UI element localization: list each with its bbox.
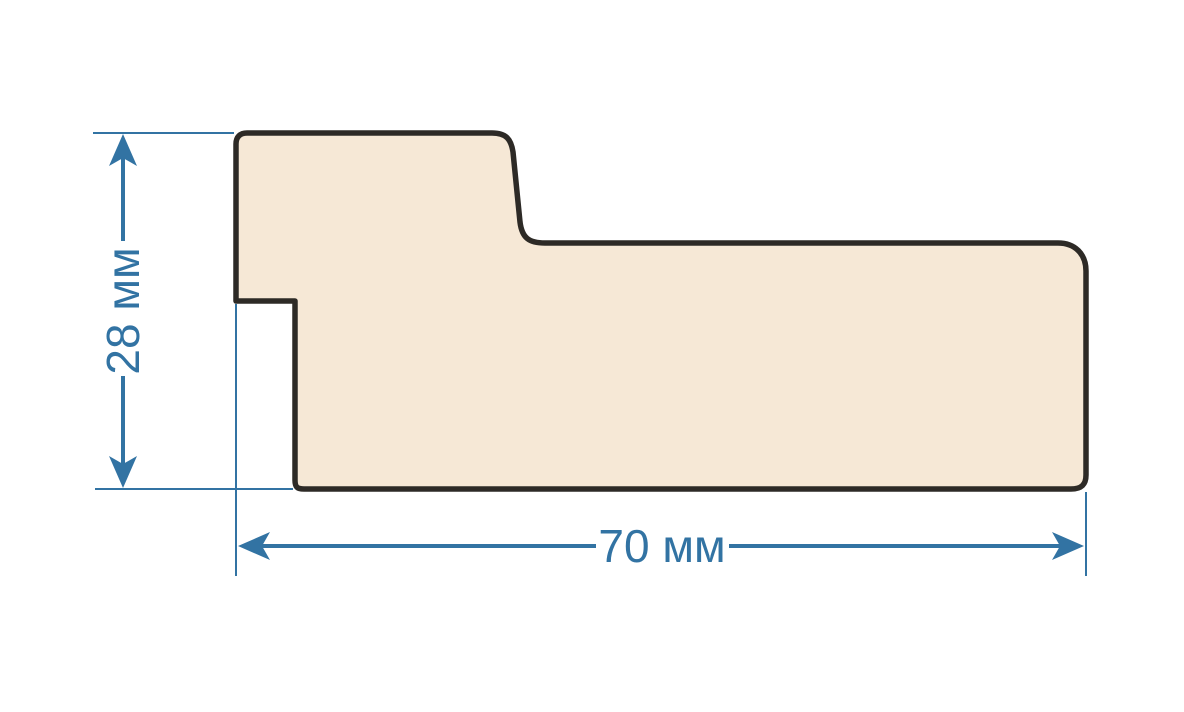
height-dimension-label: 28 мм bbox=[97, 247, 149, 374]
drawing-canvas: 28 мм 70 мм bbox=[0, 0, 1184, 712]
technical-drawing: 28 мм 70 мм bbox=[0, 0, 1184, 712]
width-dimension-label: 70 мм bbox=[598, 520, 725, 572]
profile bbox=[236, 133, 1086, 489]
profile-shape bbox=[236, 133, 1086, 489]
